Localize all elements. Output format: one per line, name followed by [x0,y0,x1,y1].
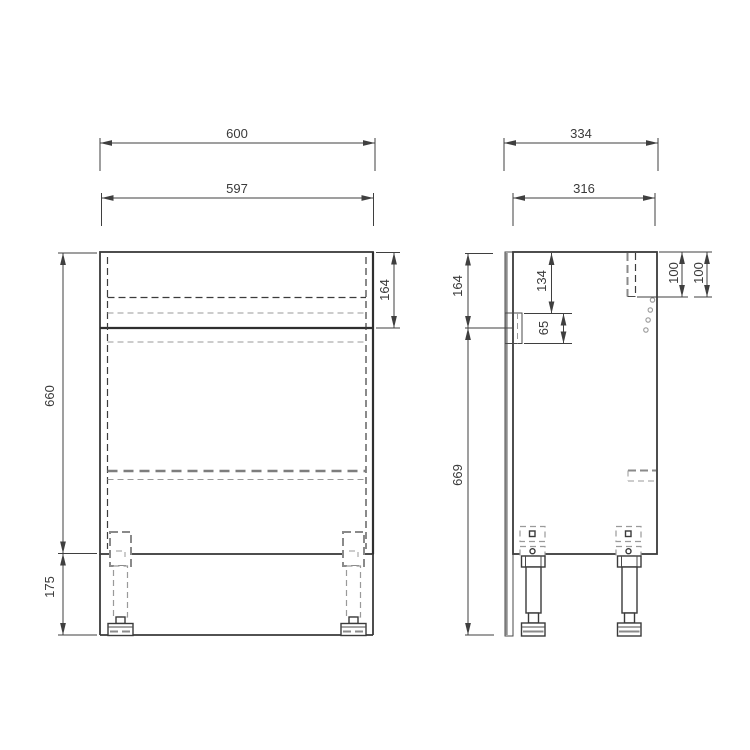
hanging-bracket-slot [628,253,636,297]
adjustable-foot [108,624,133,636]
front-carcass-width-label: 597 [226,181,248,196]
front-overall-width-label: 600 [226,126,248,141]
side-fixing-offset-a-label: 100 [666,262,681,284]
side-view [495,252,657,636]
side-view-front-panel [505,252,513,636]
dimensions: 600 597 660 175 164 [42,126,712,635]
adjustable-foot [341,624,366,636]
side-carcass-depth-label: 316 [573,181,595,196]
side-view-carcass [513,252,657,554]
front-leg-height-label: 175 [42,576,57,598]
side-rear-leg [616,527,641,637]
front-left-leg [108,532,133,636]
pin-hole [644,328,648,332]
adjustable-foot [522,623,546,636]
dim-front-carcass-width: 597 [102,181,374,226]
dim-side-bracket-height: 65 [524,314,572,344]
side-lower-body-height-label: 669 [450,464,465,486]
shelf-notch [628,471,656,482]
dim-front-carcass-height: 660 [42,253,97,554]
dim-side-lower-body-height: 669 [450,328,494,635]
front-view [100,252,373,636]
side-front-leg [520,527,545,637]
front-drawer-height-label: 164 [377,279,392,301]
front-view-hidden-lines [108,257,367,549]
dim-front-drawer-height: 164 [376,253,400,329]
side-bracket-height-label: 65 [536,321,551,335]
pin-hole [650,298,654,302]
cabinet-dimension-drawing: 600 597 660 175 164 [0,0,750,750]
dim-front-overall-width: 600 [100,126,375,171]
pin-hole [648,308,652,312]
dim-side-fixing-offset-b: 100 [691,252,712,297]
shelf-pin-holes [644,298,655,332]
side-overall-depth-label: 334 [570,126,592,141]
side-bracket-top-offset-label: 134 [534,270,549,292]
pin-hole [646,318,650,322]
front-right-leg [341,532,366,636]
dim-side-bracket-top-offset: 134 [524,253,572,314]
technical-drawing-page: 600 597 660 175 164 [0,0,750,750]
dim-side-drawer-height: 164 [450,254,505,329]
dim-front-leg-height: 175 [42,554,97,636]
adjustable-foot [618,623,642,636]
dim-side-carcass-depth: 316 [513,181,655,226]
front-carcass-height-label: 660 [42,385,57,407]
dim-side-overall-depth: 334 [504,126,658,171]
side-fixing-offset-b-label: 100 [691,262,706,284]
front-view-outline [100,252,373,635]
side-drawer-height-label: 164 [450,275,465,297]
